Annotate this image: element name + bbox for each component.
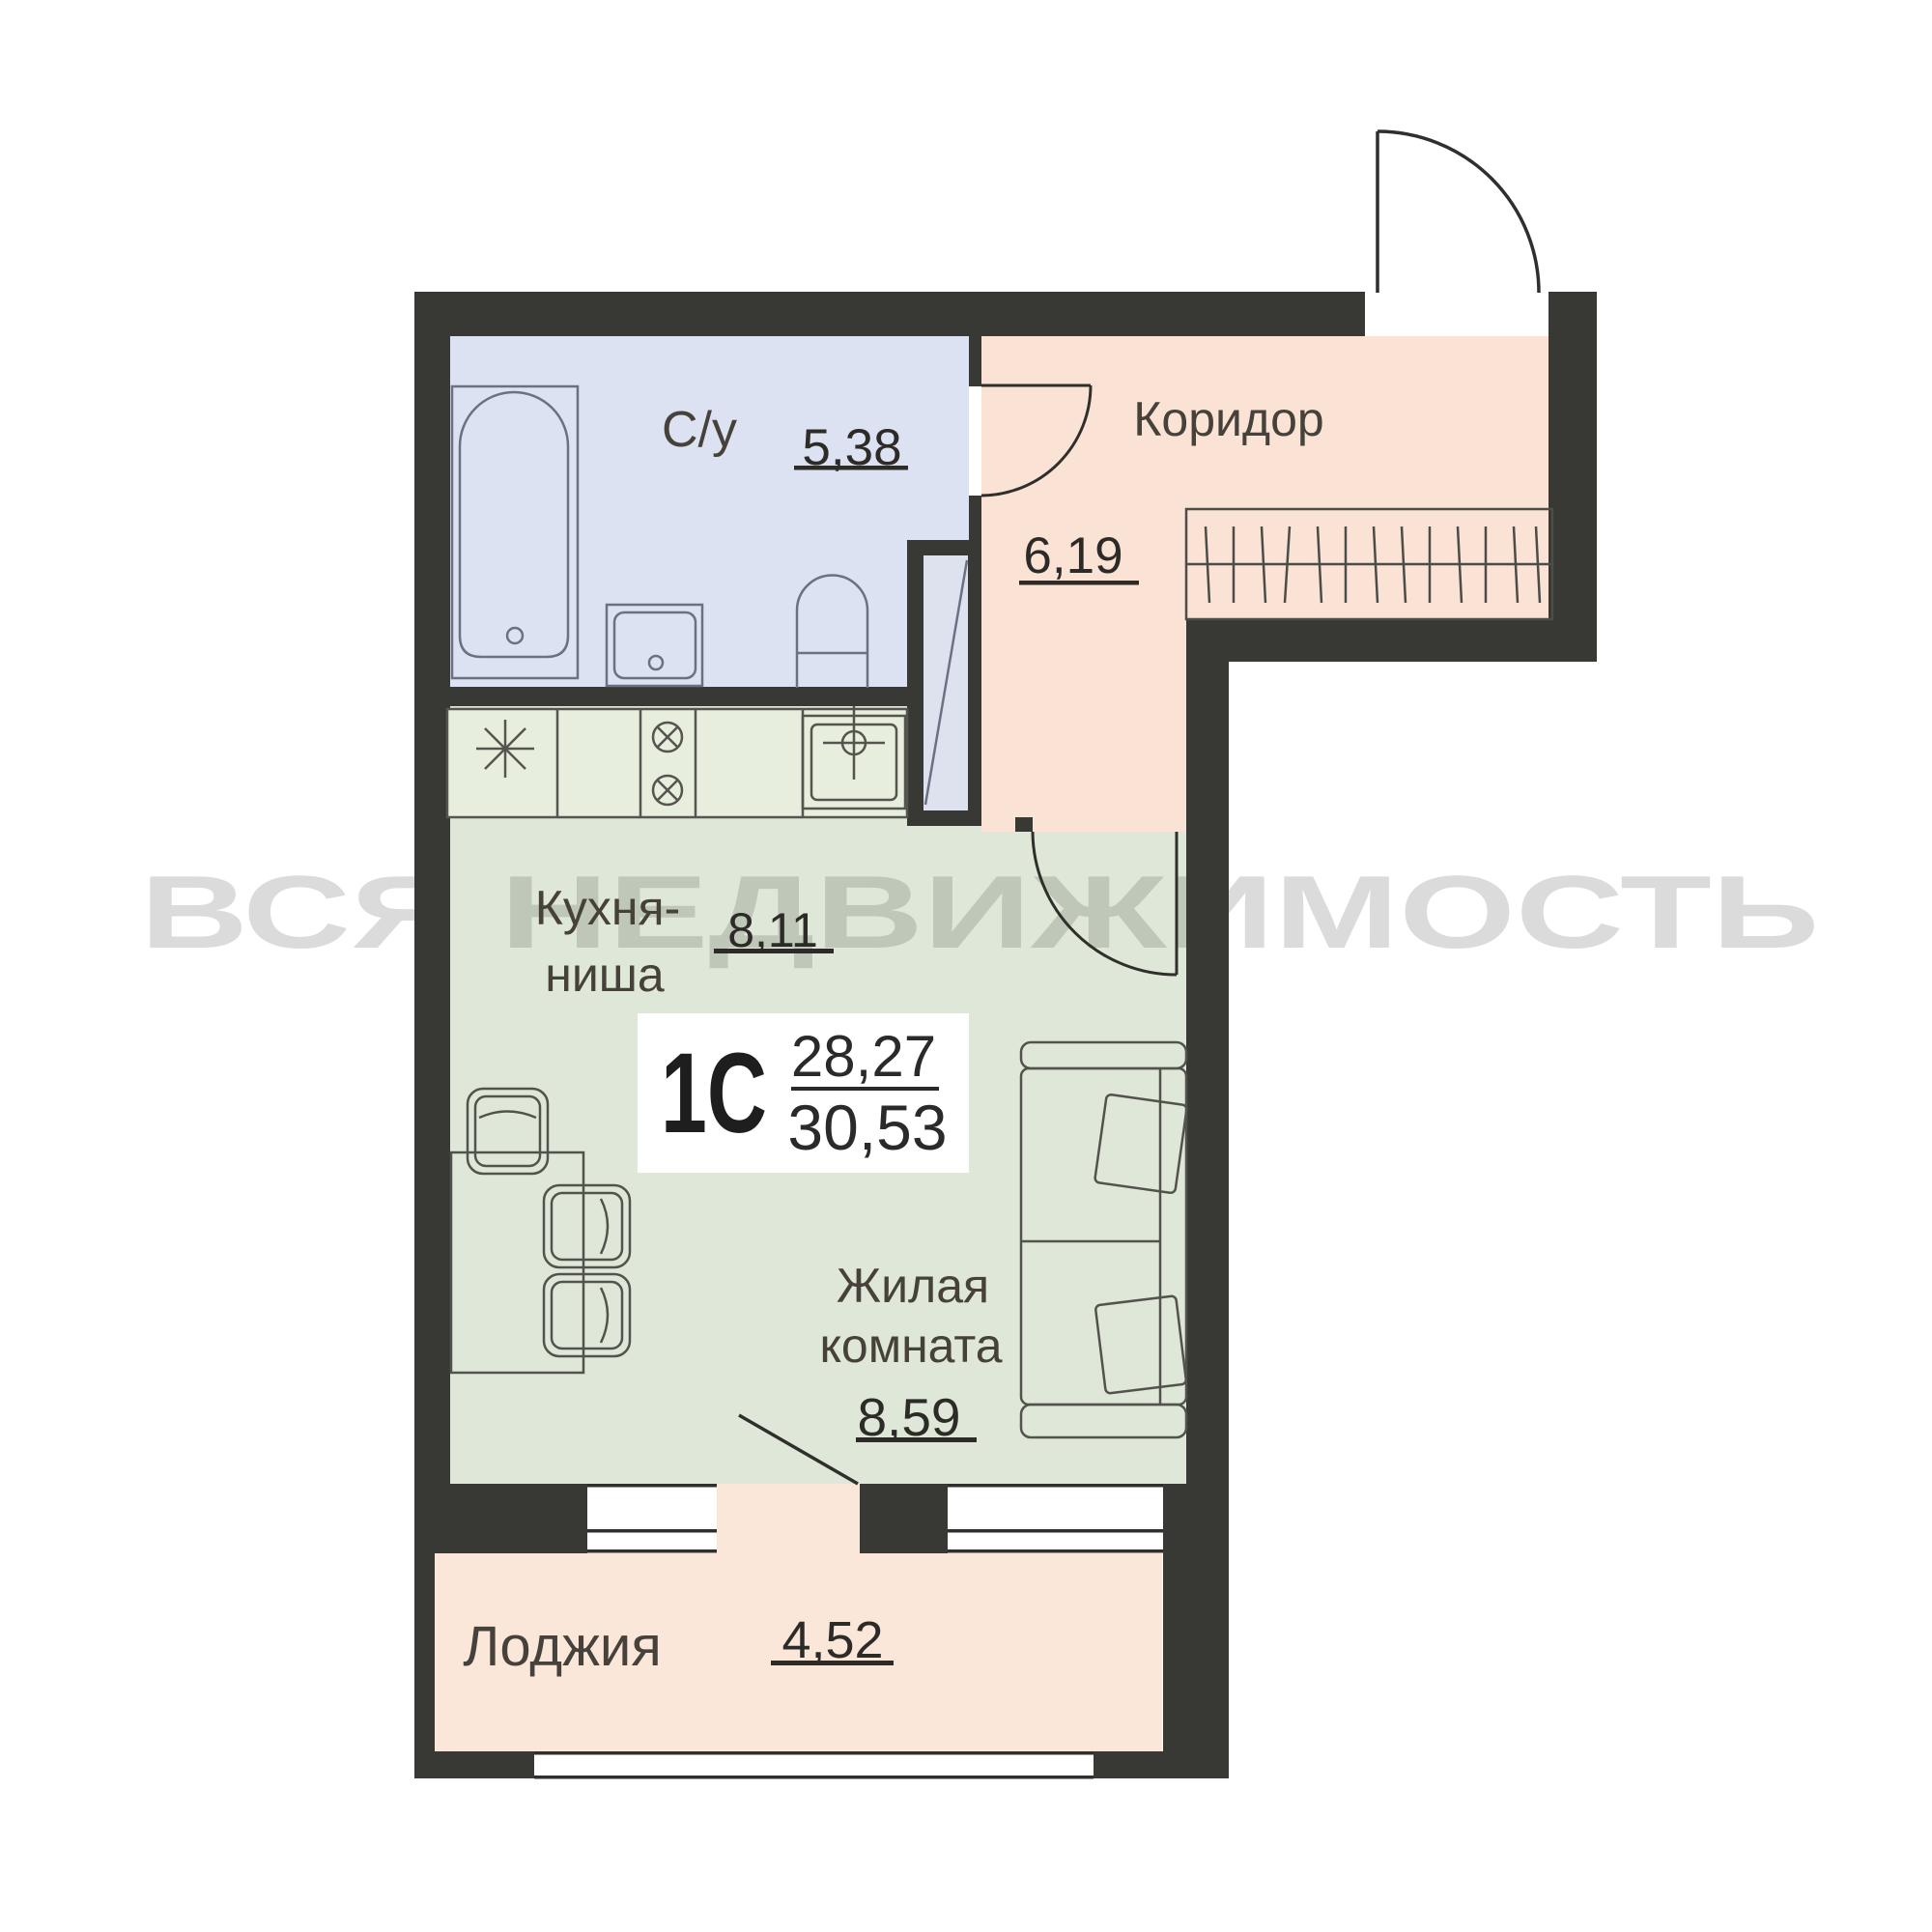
svg-text:ниша: ниша: [545, 948, 665, 1002]
svg-text:ВСЯ НЕДВИЖИМОСТЬ: ВСЯ НЕДВИЖИМОСТЬ: [140, 855, 1819, 971]
svg-text:Лоджия: Лоджия: [463, 1615, 662, 1678]
svg-text:28,27: 28,27: [791, 1024, 936, 1089]
svg-text:комната: комната: [819, 1319, 1002, 1373]
svg-text:Кухня-: Кухня-: [535, 881, 680, 935]
svg-text:Жилая: Жилая: [837, 1259, 989, 1313]
svg-text:Коридор: Коридор: [1133, 392, 1323, 446]
svg-text:6,19: 6,19: [1023, 527, 1122, 584]
svg-text:С/у: С/у: [662, 402, 737, 458]
svg-text:1С: 1С: [661, 1030, 767, 1157]
svg-text:30,53: 30,53: [787, 1092, 947, 1163]
